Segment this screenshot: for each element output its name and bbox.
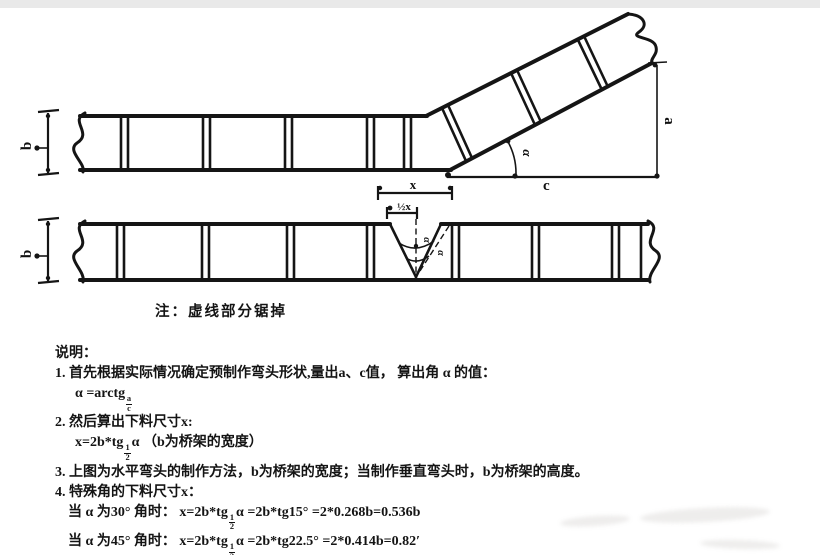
v-notch-alpha-1: α xyxy=(421,237,432,243)
instruction-step-1: 1. 首先根据实际情况确定预制作弯头形状,量出a、c值， 算出角 α 的值： xyxy=(55,364,589,384)
case-30deg: 当 α 为30° 角时： x=2b*tg12α =2b*tg15° =2*0.2… xyxy=(55,503,589,532)
dim-b-bottom: b xyxy=(19,218,59,283)
formula-x-pre: x=2b*tg xyxy=(75,435,123,450)
v-notch-alpha-2: α xyxy=(435,250,446,256)
instructions-block: 说明： 1. 首先根据实际情况确定预制作弯头形状,量出a、c值， 算出角 α 的… xyxy=(55,344,589,555)
tray-top-horizontal xyxy=(74,113,451,172)
formula-x-post: α （b为桥架的宽度） xyxy=(132,435,263,450)
scan-smudge xyxy=(700,539,780,551)
v-notch: α α xyxy=(390,219,449,281)
dim-half-x: ½x xyxy=(387,201,417,219)
tray-bottom: α α xyxy=(74,219,660,282)
formula-x: x=2b*tg12α （b为桥架的宽度） xyxy=(55,433,589,462)
tray-top-incline xyxy=(426,14,656,170)
formula-arctg-lhs: α =arctg xyxy=(75,386,125,401)
fabrication-drawing-page: b a c α x xyxy=(0,0,820,555)
angle-alpha-bend: α xyxy=(506,139,535,179)
instructions-heading: 说明： xyxy=(55,344,589,364)
dim-b-top-label: b xyxy=(19,142,35,150)
instruction-step-4: 4. 特殊角的下料尺寸x： xyxy=(55,483,589,503)
tray-bottom-rungs xyxy=(117,226,641,278)
fraction-one-half: 12 xyxy=(229,543,235,555)
tray-top-rungs xyxy=(121,118,411,168)
cable-tray-diagram: b a c α x xyxy=(0,0,820,340)
case-45deg: 当 α 为45° 角时： x=2b*tg12α =2b*tg22.5° =2*0… xyxy=(55,532,589,555)
fraction-one-half: 12 xyxy=(229,514,235,533)
dim-half-x-label: ½x xyxy=(397,201,411,213)
scan-smudge xyxy=(640,505,771,526)
formula-arctg: α =arctgac xyxy=(55,384,589,413)
dim-b-bottom-label: b xyxy=(19,250,35,258)
dim-x: x xyxy=(378,177,452,200)
fraction-a-over-c: ac xyxy=(126,395,132,414)
dim-x-label: x xyxy=(410,177,417,192)
dim-a: a xyxy=(648,62,677,179)
dim-b-top: b xyxy=(19,110,59,175)
instruction-step-2: 2. 然后算出下料尺寸x: xyxy=(55,413,589,433)
angle-alpha-bend-label: α xyxy=(520,149,535,157)
dim-a-label: a xyxy=(661,117,677,125)
dim-c: c xyxy=(445,172,657,194)
dim-c-label: c xyxy=(543,178,550,194)
instruction-step-3: 3. 上图为水平弯头的制作方法，b为桥架的宽度；当制作垂直弯头时，b为桥架的高度… xyxy=(55,463,589,483)
saw-off-note: 注：虚线部分锯掉 xyxy=(155,300,287,321)
fraction-one-half: 12 xyxy=(124,444,130,463)
